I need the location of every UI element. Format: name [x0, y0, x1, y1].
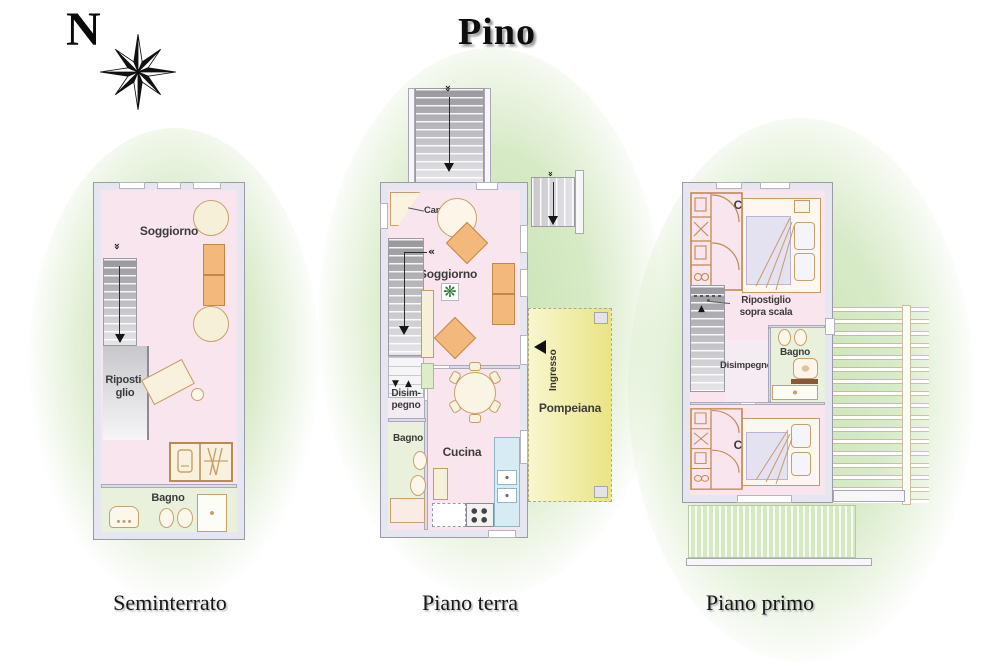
round-table	[193, 306, 229, 342]
stair-rail	[408, 88, 415, 183]
page-title: Pino	[377, 10, 617, 54]
stair-rail	[484, 88, 491, 183]
bidet-icon	[159, 508, 174, 528]
window-opening	[825, 318, 835, 335]
appliance-icon	[497, 470, 517, 485]
dining-chair	[469, 362, 481, 371]
sink-icon	[793, 358, 818, 379]
stove-icon	[466, 503, 494, 527]
round-table	[193, 200, 229, 236]
window-opening	[380, 203, 388, 229]
door-opening	[740, 402, 756, 405]
stair-direction-line	[119, 266, 120, 336]
stair-start-chevron-icon: «	[546, 171, 556, 177]
pergola-post	[594, 486, 608, 498]
window-opening	[476, 182, 498, 190]
balcony-door-opening	[737, 495, 792, 503]
floor-plan-sheet: N Pino Soggiorno « Riposti- glio	[0, 0, 1000, 667]
sofa	[492, 263, 515, 325]
shower-tray-icon	[390, 498, 425, 523]
bed-fold-lines-icon	[742, 198, 821, 293]
ingresso-arrow-icon	[534, 340, 546, 354]
stair-arrow-icon	[548, 216, 558, 225]
balcony-deck	[688, 505, 856, 558]
dining-chair	[469, 414, 481, 423]
caption-piano-terra: Piano terra	[395, 590, 545, 616]
window-opening	[119, 182, 145, 189]
room-label-bagno: Bagno	[133, 492, 203, 505]
room-label-disimpegno: Disimpegno	[720, 360, 772, 371]
stair-arrow-icon	[115, 334, 125, 343]
window-opening	[157, 182, 181, 189]
kitchen-cabinet	[433, 468, 448, 500]
bidet-icon	[794, 329, 807, 346]
sofa	[203, 244, 225, 306]
wardrobe-icon	[169, 442, 233, 482]
bed-fold-lines-icon	[742, 418, 820, 486]
label-pompeiana: Pompeiana	[528, 401, 612, 415]
pergola-edge	[833, 490, 905, 502]
plan-piano-primo: Camera ▲ Ripostiglio so	[682, 182, 932, 574]
washbasin-icon	[109, 506, 139, 528]
stair-rail	[575, 170, 584, 234]
pergola-post	[594, 312, 608, 324]
room-label-disimpegno: Disim- pegno	[386, 388, 426, 412]
room-label-bagno: Bagno	[391, 433, 425, 445]
planter-strip	[421, 363, 434, 389]
stair-arrow-icon	[444, 163, 454, 172]
window-opening	[520, 269, 528, 297]
pergola-beam	[902, 305, 911, 505]
stair-direction-line	[553, 182, 554, 218]
wardrobe-icon	[690, 192, 743, 291]
caption-seminterrato: Seminterrato	[95, 590, 245, 616]
toilet-icon	[778, 329, 791, 346]
wardrobe-icon	[690, 408, 743, 490]
bath-shelf	[791, 379, 818, 384]
window-opening	[193, 182, 221, 189]
window-opening	[488, 530, 516, 538]
window-opening	[520, 430, 528, 464]
partition-wall	[388, 418, 426, 422]
stair-start-chevron-icon: «	[110, 243, 123, 250]
label-ripostiglio-sopra-scala: Ripostiglio sopra scala	[730, 295, 802, 319]
stair-start-chevron-icon: «	[428, 245, 435, 258]
window-opening	[716, 182, 742, 189]
desk-chair	[191, 388, 204, 401]
staircase	[388, 238, 424, 356]
room-label-ripostiglio: Riposti- glio	[103, 374, 147, 400]
label-ingresso: Ingresso	[548, 323, 559, 391]
storage-shelf	[421, 290, 434, 358]
appliance-icon	[497, 488, 517, 503]
compass-rose-icon	[96, 30, 180, 114]
staircase	[103, 258, 137, 346]
shower-icon	[197, 494, 227, 532]
stair-start-chevron-icon: «	[441, 85, 454, 92]
bath-cabinet-icon	[772, 385, 818, 400]
bidet-icon	[410, 475, 426, 496]
plant-icon: ❋	[439, 282, 461, 301]
stair-arrow-icon	[399, 326, 409, 335]
entry-door-opening	[520, 335, 528, 365]
stair-direction-line	[404, 252, 405, 328]
plan-seminterrato: Soggiorno « Riposti- glio Bagno	[93, 182, 247, 544]
kitchen-counter	[432, 503, 466, 527]
stair-direction-line	[405, 252, 427, 253]
plan-piano-terra: « « Caminetto Sog	[372, 85, 622, 545]
stair-up-arrow-icon: ▲	[698, 304, 705, 314]
balcony-rail	[686, 558, 872, 566]
window-opening	[520, 225, 528, 253]
toilet-icon	[177, 508, 193, 528]
pergola-slats	[833, 307, 929, 503]
stair-dashed-line	[694, 295, 721, 297]
toilet-icon	[413, 451, 427, 470]
stair-direction-line	[449, 97, 450, 165]
partition-wall	[690, 402, 825, 405]
window-opening	[760, 182, 790, 189]
room-label-cucina: Cucina	[438, 445, 486, 459]
caption-piano-primo: Piano primo	[685, 590, 835, 616]
